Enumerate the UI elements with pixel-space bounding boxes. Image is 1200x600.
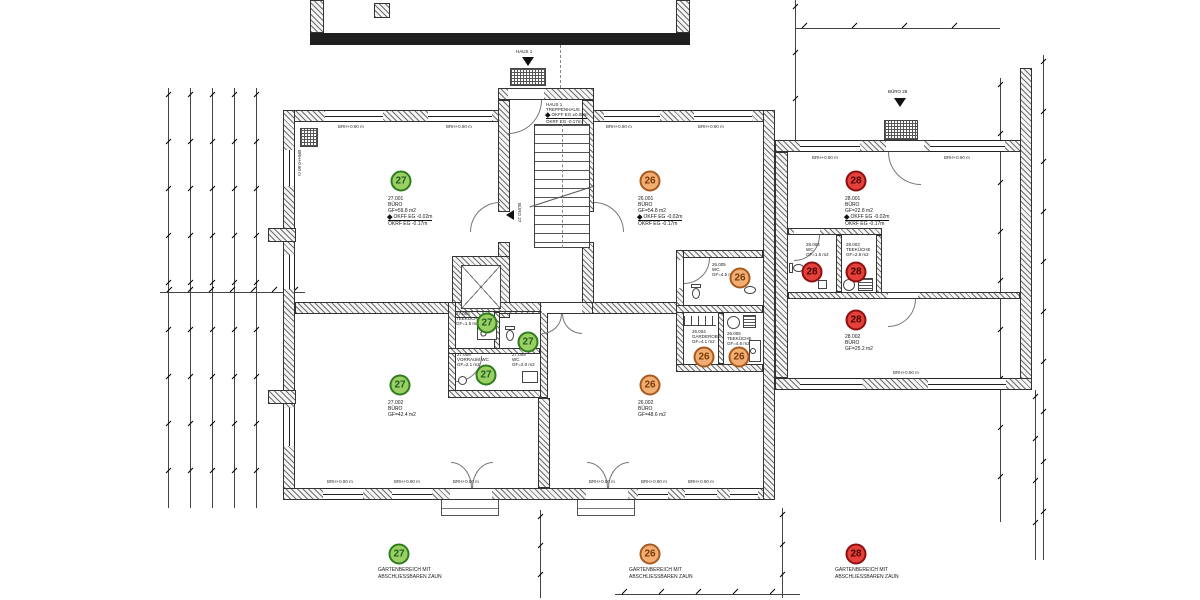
wall-segment xyxy=(763,110,775,500)
dim-tick xyxy=(166,374,172,380)
room-label: 26.001 BÜRO GF=54.8 m2 OKFF EG -0.02m OK… xyxy=(638,196,682,227)
dim-tick xyxy=(188,280,194,286)
toilet-icon xyxy=(690,284,702,300)
room-okff: OKFF EG -0.02m xyxy=(638,214,682,221)
room-okrf: OKRF EG -0.17m xyxy=(638,221,682,227)
toilet-bowl xyxy=(506,330,514,341)
level-marker-icon xyxy=(387,214,392,219)
wall-segment xyxy=(448,390,548,398)
dimension-line xyxy=(540,510,541,598)
dim-tick xyxy=(188,468,194,474)
dim-tick xyxy=(210,468,216,474)
dim-tick xyxy=(998,474,1004,480)
dim-tick xyxy=(1033,478,1039,484)
unit-badge-26: 26 xyxy=(640,375,661,396)
dim-tick xyxy=(733,589,739,595)
dim-tick xyxy=(998,327,1004,333)
room-okrf: OKRF EG -0.17m xyxy=(845,221,889,227)
window xyxy=(685,488,717,500)
unit-badge-26: 26 xyxy=(694,347,715,368)
entrance-steps xyxy=(441,500,499,516)
wall-segment xyxy=(374,3,390,18)
dim-tick xyxy=(1033,520,1039,526)
dim-tick xyxy=(696,589,702,595)
dimension-line xyxy=(190,88,191,508)
room-label: 28.003 TEEKÜCHE GF=2.8 m2 xyxy=(846,242,871,258)
dim-tick xyxy=(232,186,238,192)
sill-height-label: BRH+0.90 m xyxy=(338,124,364,129)
dim-tick xyxy=(254,92,260,98)
dim-tick xyxy=(166,233,172,239)
sill-height-label: BRH+0.90 m xyxy=(446,124,472,129)
dimension-line xyxy=(1043,55,1044,560)
level-marker-icon xyxy=(637,214,642,219)
window xyxy=(283,255,295,289)
dim-tick xyxy=(852,23,858,29)
coat-hooks xyxy=(684,316,716,326)
dim-tick xyxy=(210,374,216,380)
room-area: GF=25.2 m2 xyxy=(845,346,873,352)
door-opening xyxy=(794,229,820,234)
sink-icon xyxy=(744,286,756,294)
room-label: 28.002 BÜRO GF=25.2 m2 xyxy=(845,334,873,352)
dim-tick xyxy=(188,92,194,98)
door-opening xyxy=(508,89,544,99)
sill-height-label: BRH+0.90 m xyxy=(394,479,420,484)
room-label: 26.002 BÜRO GF=48.6 m2 xyxy=(638,400,666,418)
dim-tick xyxy=(793,50,799,56)
dim-tick xyxy=(232,280,238,286)
dim-tick xyxy=(998,229,1004,235)
dim-tick xyxy=(998,131,1004,137)
dimension-line xyxy=(795,0,796,140)
door-opening xyxy=(677,260,683,288)
entrance-label-buero28: BÜRO 28 xyxy=(888,89,907,94)
legend-text: GARTENBEREICH MIT ABSCHLIESSBAREN ZAUN xyxy=(378,567,442,580)
dim-tick xyxy=(998,82,1004,88)
dimension-line xyxy=(234,88,235,508)
entrance-label-haus1: HAUS 1 xyxy=(516,49,532,54)
dim-tick xyxy=(1033,436,1039,442)
door-arc xyxy=(587,462,608,488)
dimension-line xyxy=(212,88,213,508)
legend-text: GARTENBEREICH MIT ABSCHLIESSBAREN ZAUN xyxy=(629,567,693,580)
sill-height-label: BRH+0.90 m xyxy=(297,150,302,176)
window xyxy=(928,378,1006,390)
unit-badge-27: 27 xyxy=(476,365,497,386)
dim-tick xyxy=(622,589,628,595)
entrance-steps xyxy=(577,500,635,516)
dim-tick xyxy=(780,512,786,518)
door-arc xyxy=(542,314,562,334)
sill-height-label: BRH+0.90 m xyxy=(606,124,632,129)
entrance-arrow-icon xyxy=(522,57,534,66)
dim-tick xyxy=(188,374,194,380)
door-arc xyxy=(594,202,624,232)
dim-tick xyxy=(210,280,216,286)
unit-badge-26: 26 xyxy=(729,347,750,368)
legend-line: ABSCHLIESSBAREN ZAUN xyxy=(629,574,693,581)
dim-tick xyxy=(1041,359,1047,365)
door-arc xyxy=(562,314,582,334)
room-label: 27.002 BÜRO GF=42.4 m2 xyxy=(388,400,416,418)
window xyxy=(694,110,752,122)
door-opening xyxy=(886,141,924,151)
dim-tick xyxy=(1041,459,1047,465)
dim-tick xyxy=(793,96,799,102)
room-label: 26.006 TEEKÜCHE GF=4.6 m2 xyxy=(727,331,752,347)
dim-tick xyxy=(1033,394,1039,400)
window xyxy=(283,150,295,186)
window xyxy=(392,488,432,500)
sill-height-label: BRH+0.90 m xyxy=(698,124,724,129)
door-opening xyxy=(450,489,492,499)
room-okff: OKFF EG -0.02m xyxy=(845,214,889,221)
dim-tick xyxy=(232,233,238,239)
legend-line: ABSCHLIESSBAREN ZAUN xyxy=(835,574,899,581)
dim-tick xyxy=(272,287,278,293)
entrance-label-buero27: BÜRO 27 xyxy=(517,203,522,222)
window xyxy=(638,488,668,500)
dim-tick xyxy=(210,186,216,192)
dim-tick xyxy=(1041,59,1047,65)
wall-segment xyxy=(295,302,450,314)
washbasin-icon xyxy=(818,280,827,289)
wall-segment xyxy=(676,250,763,258)
dim-tick xyxy=(538,543,544,549)
dim-tick xyxy=(232,327,238,333)
dim-tick xyxy=(1041,309,1047,315)
wall-segment xyxy=(836,235,842,292)
dim-tick xyxy=(1041,209,1047,215)
legend-badge-26: 26 xyxy=(640,544,661,565)
wall-segment xyxy=(676,364,763,372)
door-arc xyxy=(470,202,500,232)
room-area: GF=2.0 m2 xyxy=(512,362,535,367)
sill-height-label: BRH+0.90 m xyxy=(812,155,838,160)
unit-badge-28: 28 xyxy=(846,310,867,331)
washbasin-icon xyxy=(522,371,538,383)
dim-tick xyxy=(770,589,776,595)
dimension-line xyxy=(1035,390,1036,560)
door-arc xyxy=(888,299,916,327)
dimension-line xyxy=(168,88,169,508)
door-arc xyxy=(684,258,710,284)
stove-icon xyxy=(743,315,756,328)
dim-tick xyxy=(210,92,216,98)
window xyxy=(730,488,758,500)
dim-tick xyxy=(998,278,1004,284)
sink-icon xyxy=(727,316,740,329)
dim-tick xyxy=(998,180,1004,186)
dimension-line xyxy=(782,508,783,598)
sill-height-label: BRH+0.00 m xyxy=(589,479,615,484)
dim-tick xyxy=(232,468,238,474)
unit-badge-27: 27 xyxy=(518,332,539,353)
legend-line: ABSCHLIESSBAREN ZAUN xyxy=(378,574,442,581)
dim-tick xyxy=(209,287,215,293)
window xyxy=(283,408,295,446)
unit-badge-28: 28 xyxy=(846,262,867,283)
dim-tick xyxy=(998,425,1004,431)
dim-tick xyxy=(166,186,172,192)
dim-tick xyxy=(538,514,544,520)
dim-tick xyxy=(166,92,172,98)
window xyxy=(800,378,862,390)
door-arc xyxy=(888,152,921,185)
dim-tick xyxy=(188,287,194,293)
room-area: GF=4.1 m2 xyxy=(692,339,721,344)
dim-tick xyxy=(188,139,194,145)
dim-tick xyxy=(780,542,786,548)
dim-tick xyxy=(166,280,172,286)
legend-text: GARTENBEREICH MIT ABSCHLIESSBAREN ZAUN xyxy=(835,567,899,580)
axis-line xyxy=(560,45,561,88)
dim-tick xyxy=(254,186,260,192)
wall-segment xyxy=(1020,68,1032,390)
dim-tick xyxy=(232,139,238,145)
door-arc xyxy=(608,462,629,488)
stair-walk-line xyxy=(562,124,563,248)
dimension-line xyxy=(615,594,800,595)
wall-segment xyxy=(538,398,550,488)
dim-tick xyxy=(1041,109,1047,115)
dim-tick xyxy=(232,374,238,380)
sill-height-label: BRH+0.90 m xyxy=(688,479,714,484)
room-label: 27.001 BÜRO GF=59.8 m2 OKFF EG -0.02m OK… xyxy=(388,196,432,227)
door-arc xyxy=(451,462,472,488)
room-label: 28.004 WC GF=1.5 m2 xyxy=(806,242,829,258)
dim-tick xyxy=(166,327,172,333)
legend-badge-28: 28 xyxy=(846,544,867,565)
dim-tick xyxy=(1041,159,1047,165)
sill-height-label: BRH+0.90 m xyxy=(327,479,353,484)
window xyxy=(604,110,660,122)
entrance-mat xyxy=(510,68,546,86)
dim-tick xyxy=(188,186,194,192)
window xyxy=(930,140,1005,152)
level-marker-icon xyxy=(844,214,849,219)
dim-tick xyxy=(254,421,260,427)
entrance-arrow-icon xyxy=(506,210,514,220)
dim-tick xyxy=(188,421,194,427)
room-label: 27.005 WC GF=2.0 m2 xyxy=(512,352,535,368)
dimension-line xyxy=(256,88,257,508)
sill-height-label: BRH+0.90 m xyxy=(641,479,667,484)
dim-tick xyxy=(538,572,544,578)
unit-badge-26: 26 xyxy=(640,171,661,192)
room-okrf: OKRF EG -0.17m xyxy=(388,221,432,227)
dim-tick xyxy=(254,327,260,333)
dim-tick xyxy=(166,139,172,145)
room-label: 26.004 GARDEROBE GF=4.1 m2 xyxy=(692,329,721,345)
dim-tick xyxy=(1041,509,1047,515)
toilet-bowl xyxy=(692,288,700,299)
unit-badge-26: 26 xyxy=(730,268,751,289)
window xyxy=(325,110,383,122)
window xyxy=(428,110,492,122)
sill-height-label: BRH+0.00 m xyxy=(453,479,479,484)
unit-badge-27: 27 xyxy=(477,313,498,334)
room-okff: OKFF EG -0.02m xyxy=(388,214,432,221)
room-label: 28.001 BÜRO GF=22.8 m2 OKFF EG -0.02m OK… xyxy=(845,196,889,227)
dim-tick xyxy=(254,280,260,286)
dim-tick xyxy=(210,327,216,333)
dim-tick xyxy=(232,92,238,98)
dim-tick xyxy=(952,23,958,29)
room-area: GF=48.6 m2 xyxy=(638,412,666,418)
entrance-mat xyxy=(884,120,918,140)
dim-tick xyxy=(166,468,172,474)
dimension-line xyxy=(795,28,1000,29)
sill-height-label: BRH+0.90 m xyxy=(893,370,919,375)
room-area: GF=42.4 m2 xyxy=(388,412,416,418)
dim-tick xyxy=(210,233,216,239)
dim-tick xyxy=(659,589,665,595)
dim-tick xyxy=(232,421,238,427)
door-opening xyxy=(888,293,918,298)
dim-tick xyxy=(188,233,194,239)
dim-tick xyxy=(188,327,194,333)
dim-tick xyxy=(780,572,786,578)
door-arc xyxy=(472,462,493,488)
wall-segment xyxy=(310,0,324,33)
window xyxy=(800,140,860,152)
stairwell-okrf: OKRF EG -0.17m xyxy=(546,119,587,124)
wall-segment xyxy=(676,0,690,33)
wall-segment xyxy=(775,152,788,378)
window xyxy=(323,488,363,500)
dim-tick xyxy=(1041,259,1047,265)
wall-segment xyxy=(592,302,680,314)
level-marker-icon xyxy=(545,112,550,117)
unit-badge-27: 27 xyxy=(391,171,412,192)
wall-segment xyxy=(310,33,690,45)
room-area: GF=1.5 m2 xyxy=(806,252,829,257)
unit-badge-27: 27 xyxy=(390,375,411,396)
sink-icon xyxy=(458,376,467,385)
stairwell-label: HAUS 1 TREPPENHAUS OKFF EG ±0.00m OKRF E… xyxy=(546,102,587,124)
unit-badge-28: 28 xyxy=(802,262,823,283)
floor-plan: HAUS 1 TREPPENHAUS OKFF EG ±0.00m OKRF E… xyxy=(0,0,1200,600)
dim-tick xyxy=(254,374,260,380)
dim-tick xyxy=(254,233,260,239)
door-opening xyxy=(542,303,582,313)
dim-tick xyxy=(210,421,216,427)
elevator-shaft xyxy=(461,265,501,309)
dim-tick xyxy=(1041,409,1047,415)
wall-segment xyxy=(268,228,296,242)
dim-tick xyxy=(254,468,260,474)
room-area: GF=2.8 m2 xyxy=(846,252,871,257)
dim-tick xyxy=(902,23,908,29)
wall-segment xyxy=(268,390,296,404)
dim-tick xyxy=(793,4,799,10)
toilet-icon xyxy=(504,326,516,342)
wall-segment xyxy=(876,235,882,298)
unit-badge-28: 28 xyxy=(846,171,867,192)
dim-tick xyxy=(802,23,808,29)
entrance-arrow-icon xyxy=(894,98,906,107)
floor-grate xyxy=(300,128,318,147)
sill-height-label: BRH+0.90 m xyxy=(944,155,970,160)
wall-segment xyxy=(676,305,763,313)
door-opening xyxy=(586,489,628,499)
dim-tick xyxy=(210,139,216,145)
legend-badge-27: 27 xyxy=(389,544,410,565)
dim-tick xyxy=(254,139,260,145)
dim-tick xyxy=(166,421,172,427)
